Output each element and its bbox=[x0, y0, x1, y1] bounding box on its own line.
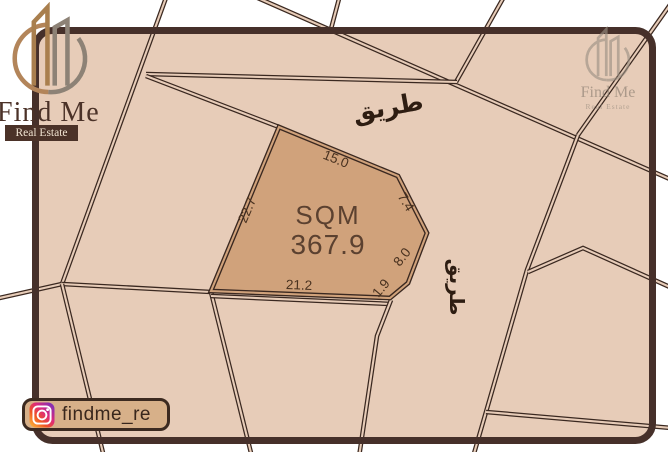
brand-logo-icon bbox=[6, 2, 98, 102]
brand-subtitle-band: Real Estate bbox=[5, 125, 78, 141]
brand-watermark: Find Me Real Estate bbox=[563, 24, 653, 119]
brand-watermark-icon bbox=[581, 26, 637, 86]
plot-area-label: SQM 367.9 bbox=[270, 201, 386, 260]
instagram-handle: findme_re bbox=[62, 404, 151, 426]
area-value-text: 367.9 bbox=[270, 230, 386, 261]
watermark-title: Find Me bbox=[563, 84, 653, 102]
area-unit-text: SQM bbox=[270, 201, 386, 230]
watermark-subtitle: Real Estate bbox=[563, 102, 653, 111]
brand-logo: Find Me Real Estate bbox=[0, 0, 130, 150]
brand-subtitle: Real Estate bbox=[15, 127, 67, 139]
instagram-badge[interactable]: findme_re bbox=[22, 398, 170, 431]
flyer-canvas: 15.022.721.27.48.01.9طريقطريق SQM 367.9 … bbox=[0, 0, 668, 452]
instagram-icon bbox=[29, 402, 55, 428]
